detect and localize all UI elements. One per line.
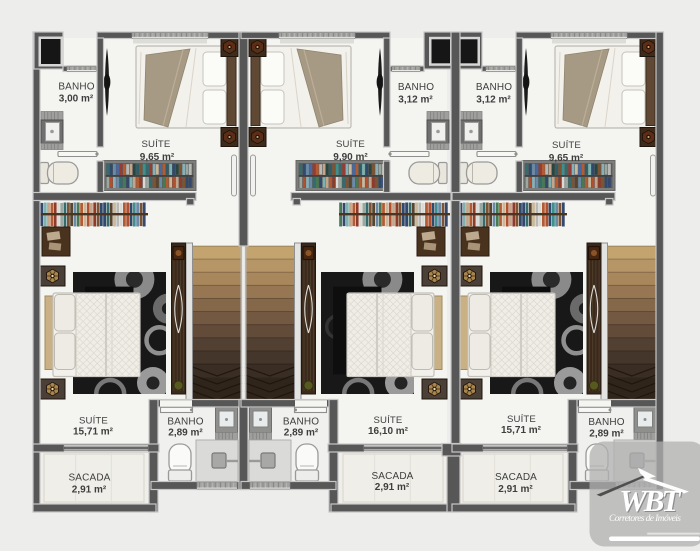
- svg-text:2,89 m²: 2,89 m²: [284, 428, 319, 439]
- svg-text:SACADA: SACADA: [371, 471, 413, 482]
- svg-text:3,00 m²: 3,00 m²: [59, 94, 94, 105]
- svg-text:SUÍTE: SUÍTE: [79, 416, 108, 427]
- svg-text:3,12 m²: 3,12 m²: [476, 95, 511, 106]
- svg-text:WBT: WBT: [619, 483, 681, 518]
- svg-text:15,71 m²: 15,71 m²: [501, 425, 542, 436]
- svg-text:BANHO: BANHO: [476, 82, 512, 93]
- svg-text:BANHO: BANHO: [167, 417, 203, 428]
- svg-text:2,91 m²: 2,91 m²: [72, 485, 107, 496]
- svg-text:9,90 m²: 9,90 m²: [333, 152, 368, 163]
- svg-text:Corretores de Imóveis: Corretores de Imóveis: [609, 514, 681, 524]
- svg-text:SUÍTE: SUÍTE: [141, 139, 170, 150]
- svg-text:SUÍTE: SUÍTE: [373, 415, 402, 426]
- svg-text:SACADA: SACADA: [68, 473, 110, 484]
- svg-text:SUÍTE: SUÍTE: [336, 139, 365, 150]
- svg-text:2,89 m²: 2,89 m²: [589, 429, 624, 440]
- svg-text:9,65 m²: 9,65 m²: [140, 152, 175, 163]
- svg-text:3,12 m²: 3,12 m²: [398, 95, 433, 106]
- svg-text:9,65 m²: 9,65 m²: [549, 153, 584, 164]
- svg-text:2,91 m²: 2,91 m²: [375, 482, 410, 493]
- svg-text:SACADA: SACADA: [495, 472, 537, 483]
- svg-text:BANHO: BANHO: [283, 417, 319, 428]
- svg-text:BANHO: BANHO: [588, 417, 624, 428]
- svg-text:2,89 m²: 2,89 m²: [168, 428, 203, 439]
- svg-text:SUÍTE: SUÍTE: [507, 414, 536, 425]
- svg-text:16,10 m²: 16,10 m²: [368, 426, 409, 437]
- svg-text:2,91 m²: 2,91 m²: [498, 484, 533, 495]
- svg-text:BANHO: BANHO: [398, 82, 434, 93]
- svg-text:SUÍTE: SUÍTE: [552, 140, 581, 151]
- svg-text:15,71 m²: 15,71 m²: [73, 427, 114, 438]
- svg-text:BANHO: BANHO: [58, 82, 94, 93]
